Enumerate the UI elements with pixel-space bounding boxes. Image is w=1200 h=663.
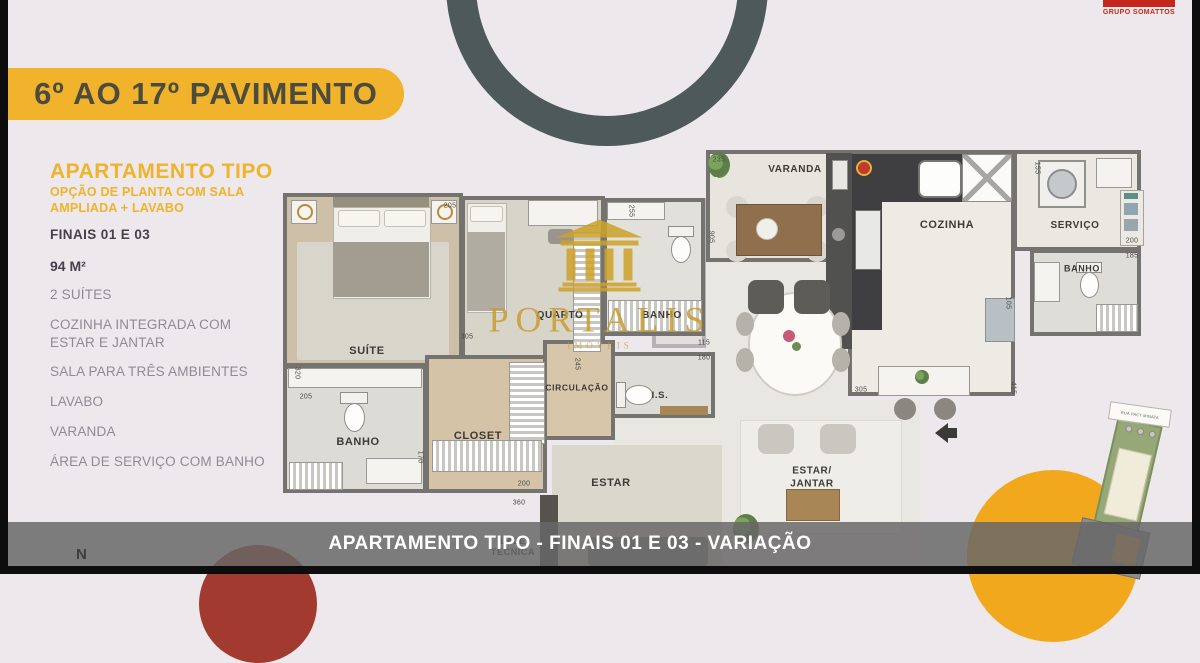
dimension-label: 185 [1126,253,1139,260]
closet-wardrobe-bottom [432,440,542,472]
is-toilet [625,385,653,405]
servico-sink [1096,158,1132,188]
jantar-chair [820,424,856,454]
kitchen-sink [918,160,962,198]
jantar-chair [758,424,794,454]
shelf-box [1124,193,1138,199]
dining-chair [736,348,754,372]
floor-range-title: 6º AO 17º PAVIMENTO [34,76,378,112]
caption-bar: APARTAMENTO TIPO - FINAIS 01 E 03 - VARI… [0,522,1200,566]
room-label: COZINHA [920,219,974,233]
brand-logo-bar [1103,0,1175,7]
dimension-label: 320 [294,367,301,380]
brand-name: GRUPO SOMATTOS [1100,9,1178,16]
floor-range-banner: 6º AO 17º PAVIMENTO [8,68,404,120]
left-edge-bar [0,0,8,574]
dimension-label: 200 [1126,238,1139,245]
suite-bed-headboard [333,197,429,207]
dimension-label: 235 [713,157,726,164]
is-shelf [660,406,708,415]
room-label: I.S. [652,390,669,402]
room-label: CLOSET [454,430,502,444]
kitchen-stool [894,398,916,420]
dining-chair [832,348,850,372]
dimension-label: 255 [628,205,635,218]
decor-ring [446,0,768,146]
dimension-label: 305 [461,334,474,341]
banho-suite-sink [366,458,422,484]
entrance-arrow-icon [925,423,948,443]
bottom-edge-bar [0,566,1200,574]
dining-flowers-leaf [792,342,801,351]
feature-item: COZINHA INTEGRADA COM ESTAR E JANTAR [50,316,265,352]
feature-item: ÁREA DE SERVIÇO COM BANHO [50,453,265,471]
dimension-label: 180 [698,355,711,362]
banho-suite-toilet [344,403,365,432]
varanda-table [736,204,822,256]
room-label: BANHO [1064,263,1100,274]
dimension-label: 170 [417,451,424,464]
temple-icon [557,220,643,292]
dimension-label: 155 [1034,162,1041,175]
dining-chair [832,312,850,336]
closet-wardrobe-side [509,362,545,444]
island-plant [915,370,929,384]
wall-knob [832,228,845,241]
armchair [794,280,830,314]
area-label: 94 M² [50,258,86,274]
caption-text: APARTAMENTO TIPO - FINAIS 01 E 03 - VARI… [329,533,812,555]
suite-duvet [333,242,429,297]
apartment-type-subtitle: OPÇÃO DE PLANTA COM SALA AMPLIADA + LAVA… [50,184,290,217]
room-label: SERVIÇO [1050,220,1099,233]
room-label: SUÍTE [349,345,384,359]
varanda-plate [756,218,778,240]
dimension-label: 200 [518,481,531,488]
right-edge-bar [1192,0,1200,574]
feature-item: VARANDA [50,423,265,441]
dining-chair [736,312,754,336]
wall-panel [832,160,848,190]
feature-item: SALA PARA TRÊS AMBIENTES [50,363,265,381]
apartment-type-title: APARTAMENTO TIPO [50,160,273,184]
dimension-label: 105 [1005,297,1012,310]
kitchen-cabinet [962,154,1012,202]
banho-serv-vanity [1034,262,1060,302]
watermark-name: PORTALIS [489,299,712,341]
dining-flowers [783,330,795,342]
feature-list: 2 SUÍTESCOZINHA INTEGRADA COM ESTAR E JA… [50,286,265,483]
dimension-label: 415 [1010,382,1017,395]
units-label: FINAIS 01 E 03 [50,227,150,242]
dimension-label: 205 [300,394,313,401]
dimension-label: 305 [855,387,868,394]
room-label: CIRCULAÇÃO [545,383,608,394]
kitchen-stove [855,210,881,270]
suite-vanity [288,368,422,388]
compass-north-label: N [76,546,87,563]
shelf-box [1124,203,1138,215]
room-label: VARANDA [768,164,821,177]
feature-item: 2 SUÍTES [50,286,265,304]
suite-pillow [338,210,380,227]
room-label: ESTAR/ JANTAR [790,466,833,491]
banho-suite-shower [289,462,343,490]
armchair [748,280,784,314]
shelf-box [1124,219,1138,231]
street-name: RUA PACT MINATA [1121,409,1160,419]
flyer-page: { "palette":{"accent_yellow":"#F0B32B","… [0,0,1200,574]
banho2-vanity [607,202,665,220]
suite-pillow [384,210,426,227]
dimension-label: 245 [574,358,581,371]
banho-serv-toilet [1080,272,1099,298]
kitchen-fruit-bowl [856,160,872,176]
dimension-label: 205 [444,203,457,210]
watermark: PORTALIS IMÓVEIS [489,220,712,351]
room-label: BANHO [336,436,379,450]
dimension-label: 360 [513,500,526,507]
washer-drum [1047,169,1077,199]
banho-serv-shower [1096,304,1138,332]
watermark-tagline: IMÓVEIS [489,341,712,351]
kitchen-stool [934,398,956,420]
coffee-table [786,489,840,521]
feature-item: LAVABO [50,393,265,411]
suite-mirror [297,204,313,220]
room-label: ESTAR [591,477,630,491]
entrance-arrow-tail [948,428,957,438]
